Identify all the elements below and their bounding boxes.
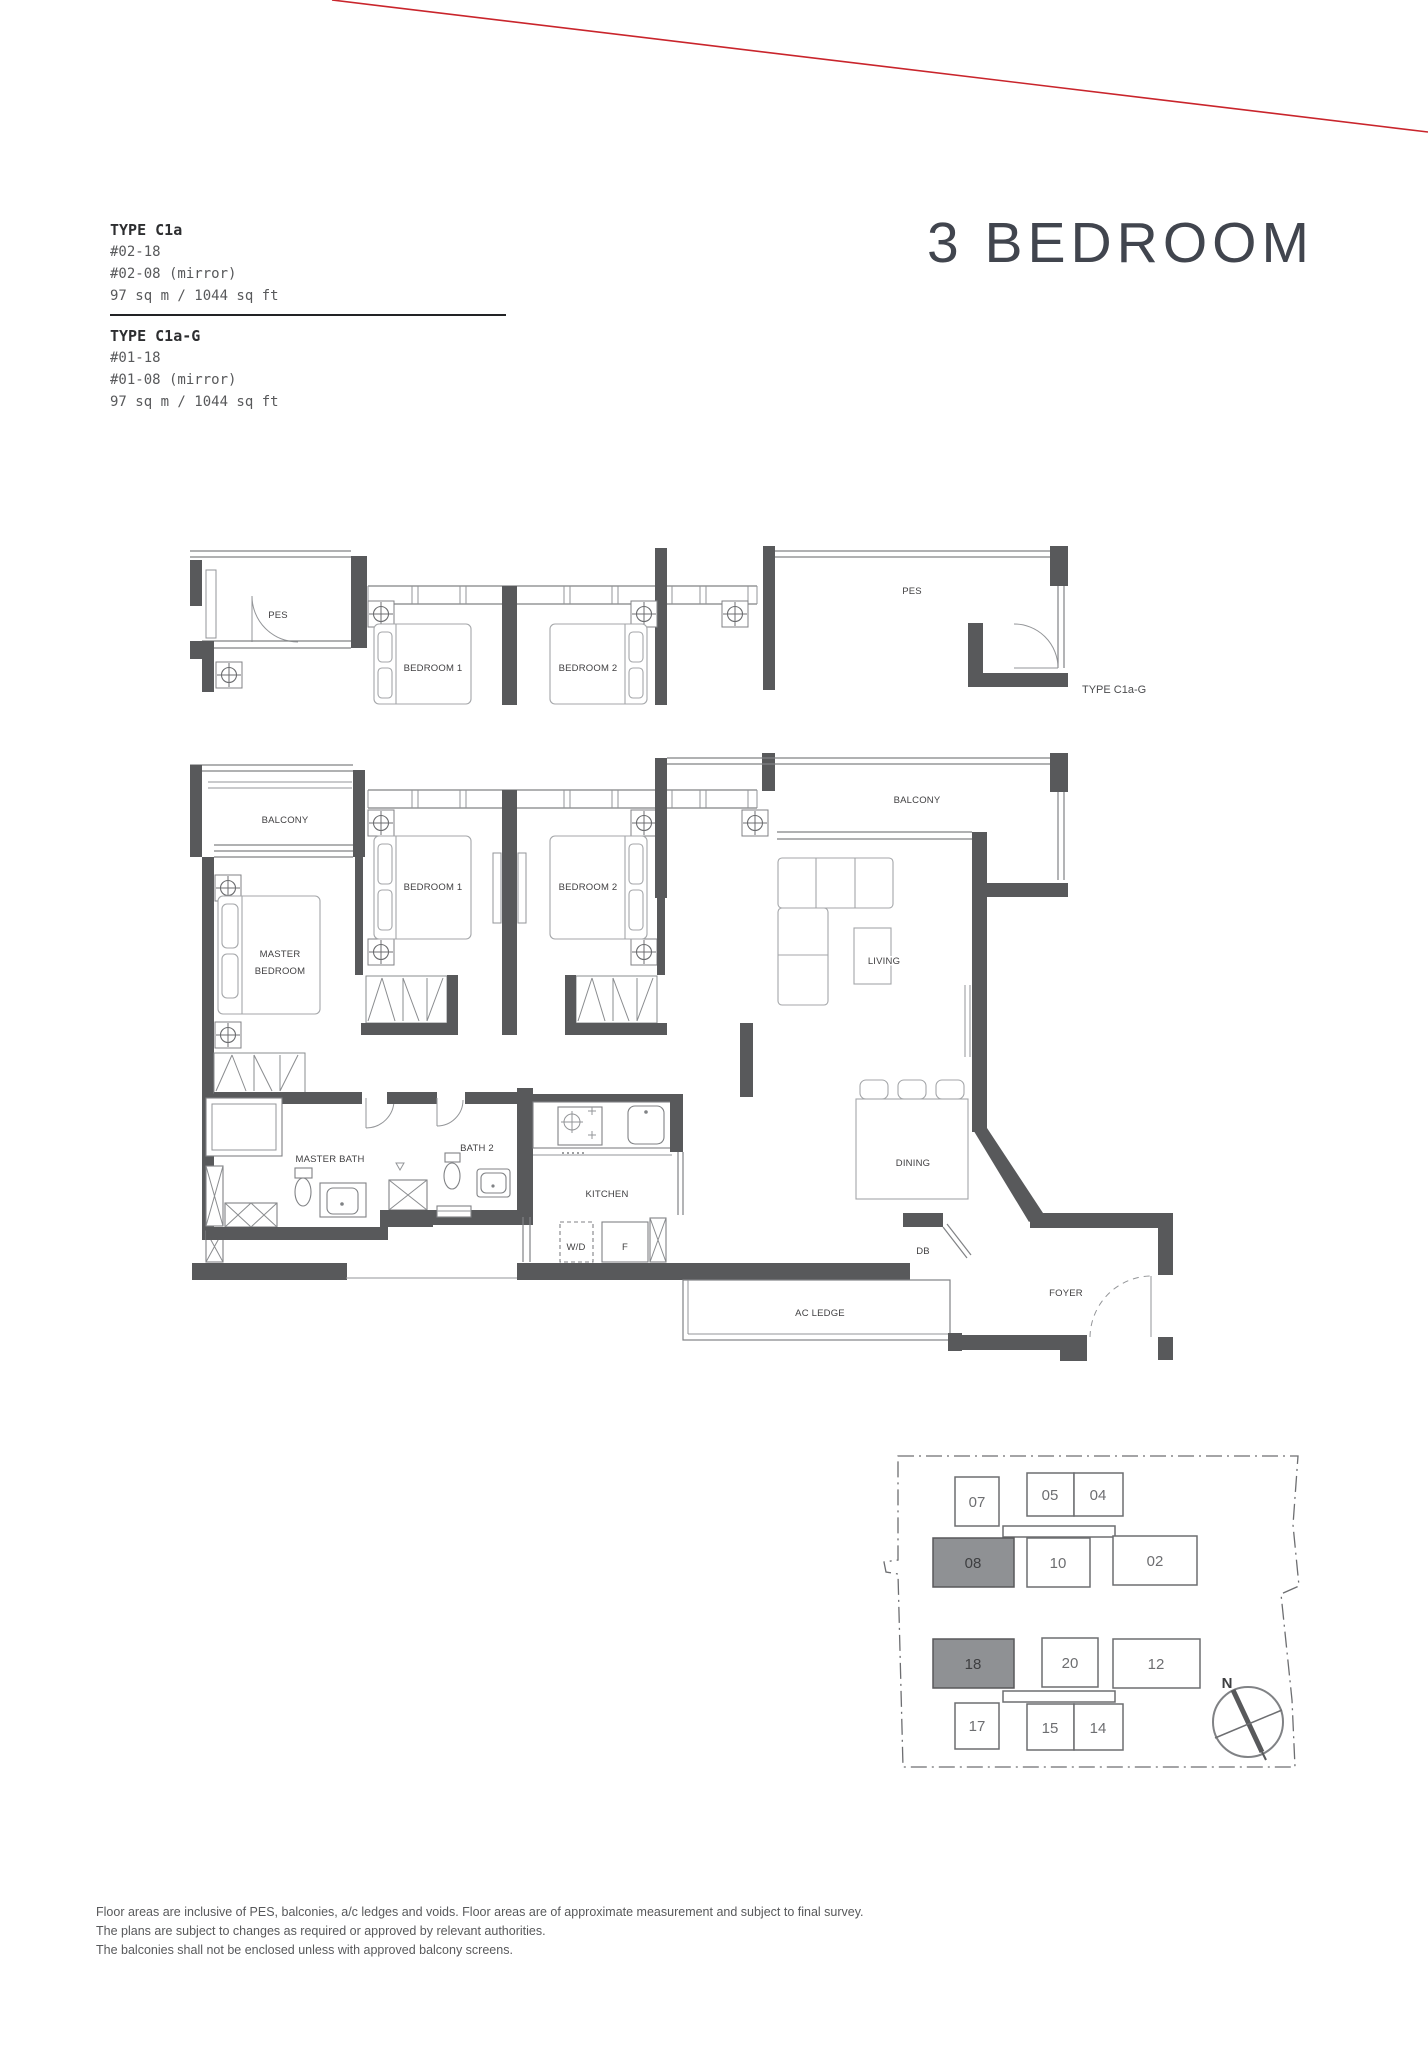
keyplan-label: 14 [1090, 1720, 1107, 1737]
floorplan-drawing: PES BEDROOM 1 BEDROOM 2 PES TYPE C1a-G [0, 0, 1428, 2064]
db-room [903, 1213, 971, 1258]
keyplan-label: 10 [1050, 1555, 1067, 1572]
crosshair-icon [368, 939, 394, 965]
upper-bedroom1 [368, 601, 471, 704]
master-bath-room [206, 1092, 394, 1262]
room-label-master-bedroom: BEDROOM [255, 966, 306, 977]
room-label-pes: PES [268, 610, 288, 621]
upper-strip-plan: PES BEDROOM 1 BEDROOM 2 PES TYPE C1a-G [190, 546, 1146, 705]
bedroom2-room [518, 758, 768, 1035]
upper-bedroom2 [550, 601, 748, 704]
room-label-master-bath: MASTER BATH [295, 1154, 364, 1165]
room-label-fridge: F [622, 1242, 628, 1253]
room-label-foyer: FOYER [1049, 1288, 1083, 1299]
crosshair-icon [631, 601, 657, 627]
keyplan-label: 02 [1147, 1553, 1164, 1570]
room-label-kitchen: KITCHEN [585, 1189, 628, 1200]
pes-right-room [763, 546, 1068, 690]
room-label-bedroom2: BEDROOM 2 [559, 882, 618, 893]
room-label-bedroom1: BEDROOM 1 [404, 663, 463, 674]
keyplan-label-highlighted: 18 [965, 1656, 982, 1673]
room-label-bedroom2: BEDROOM 2 [559, 663, 618, 674]
key-plan: 07 05 04 08 10 02 18 20 12 17 15 14 N [884, 1456, 1299, 1767]
main-plan: BALCONY BALCONY MASTER BEDROOM BEDROOM 1… [190, 753, 1173, 1361]
pes-left-room [190, 551, 367, 692]
crosshair-icon [631, 810, 657, 836]
room-label-wd: W/D [566, 1242, 585, 1253]
dining-area [856, 1080, 968, 1199]
balcony-left [190, 765, 365, 857]
floorplan-brochure-page: TYPE C1a #02-18 #02-08 (mirror) 97 sq m … [0, 0, 1428, 2064]
keyplan-label: 05 [1042, 1487, 1059, 1504]
disclaimer-line: Floor areas are inclusive of PES, balcon… [96, 1903, 864, 1922]
variant-tag: TYPE C1a-G [1082, 684, 1146, 696]
bath2-room [380, 1092, 533, 1227]
keyplan-label: 15 [1042, 1720, 1059, 1737]
keyplan-label: 04 [1090, 1487, 1107, 1504]
room-label-db: DB [916, 1246, 930, 1257]
bedroom1-room [361, 810, 501, 1035]
room-label-dining: DINING [896, 1158, 930, 1169]
red-accent-lines [0, 0, 1428, 132]
disclaimer-line: The balconies shall not be enclosed unle… [96, 1941, 864, 1960]
crosshair-icon [216, 662, 242, 688]
keyplan-label: 12 [1148, 1656, 1165, 1673]
room-label-bath2: BATH 2 [460, 1143, 494, 1154]
compass-north-label: N [1222, 1675, 1233, 1692]
room-label-living: LIVING [868, 956, 900, 967]
crosshair-icon [722, 601, 748, 627]
keyplan-label-highlighted: 08 [965, 1555, 982, 1572]
crosshair-icon [215, 1022, 241, 1048]
compass-icon: N [1213, 1675, 1283, 1760]
room-label-bedroom1: BEDROOM 1 [404, 882, 463, 893]
room-label-balcony: BALCONY [262, 815, 309, 826]
room-label-ac-ledge: AC LEDGE [795, 1308, 845, 1319]
room-label-master-bedroom: MASTER [260, 949, 301, 960]
disclaimer-line: The plans are subject to changes as requ… [96, 1922, 864, 1941]
disclaimer-block: Floor areas are inclusive of PES, balcon… [96, 1903, 864, 1960]
bedroom-window-band [368, 790, 757, 808]
keyplan-label: 07 [969, 1494, 986, 1511]
keyplan-label: 20 [1062, 1655, 1079, 1672]
room-label-pes: PES [902, 586, 922, 597]
keyplan-label: 17 [969, 1718, 986, 1735]
room-label-balcony: BALCONY [894, 795, 941, 806]
crosshair-icon [742, 810, 768, 836]
foyer-area [950, 1128, 1173, 1361]
crosshair-icon [368, 810, 394, 836]
bedroom-divider-wall [502, 790, 517, 1035]
crosshair-icon [631, 939, 657, 965]
crosshair-icon [368, 601, 394, 627]
